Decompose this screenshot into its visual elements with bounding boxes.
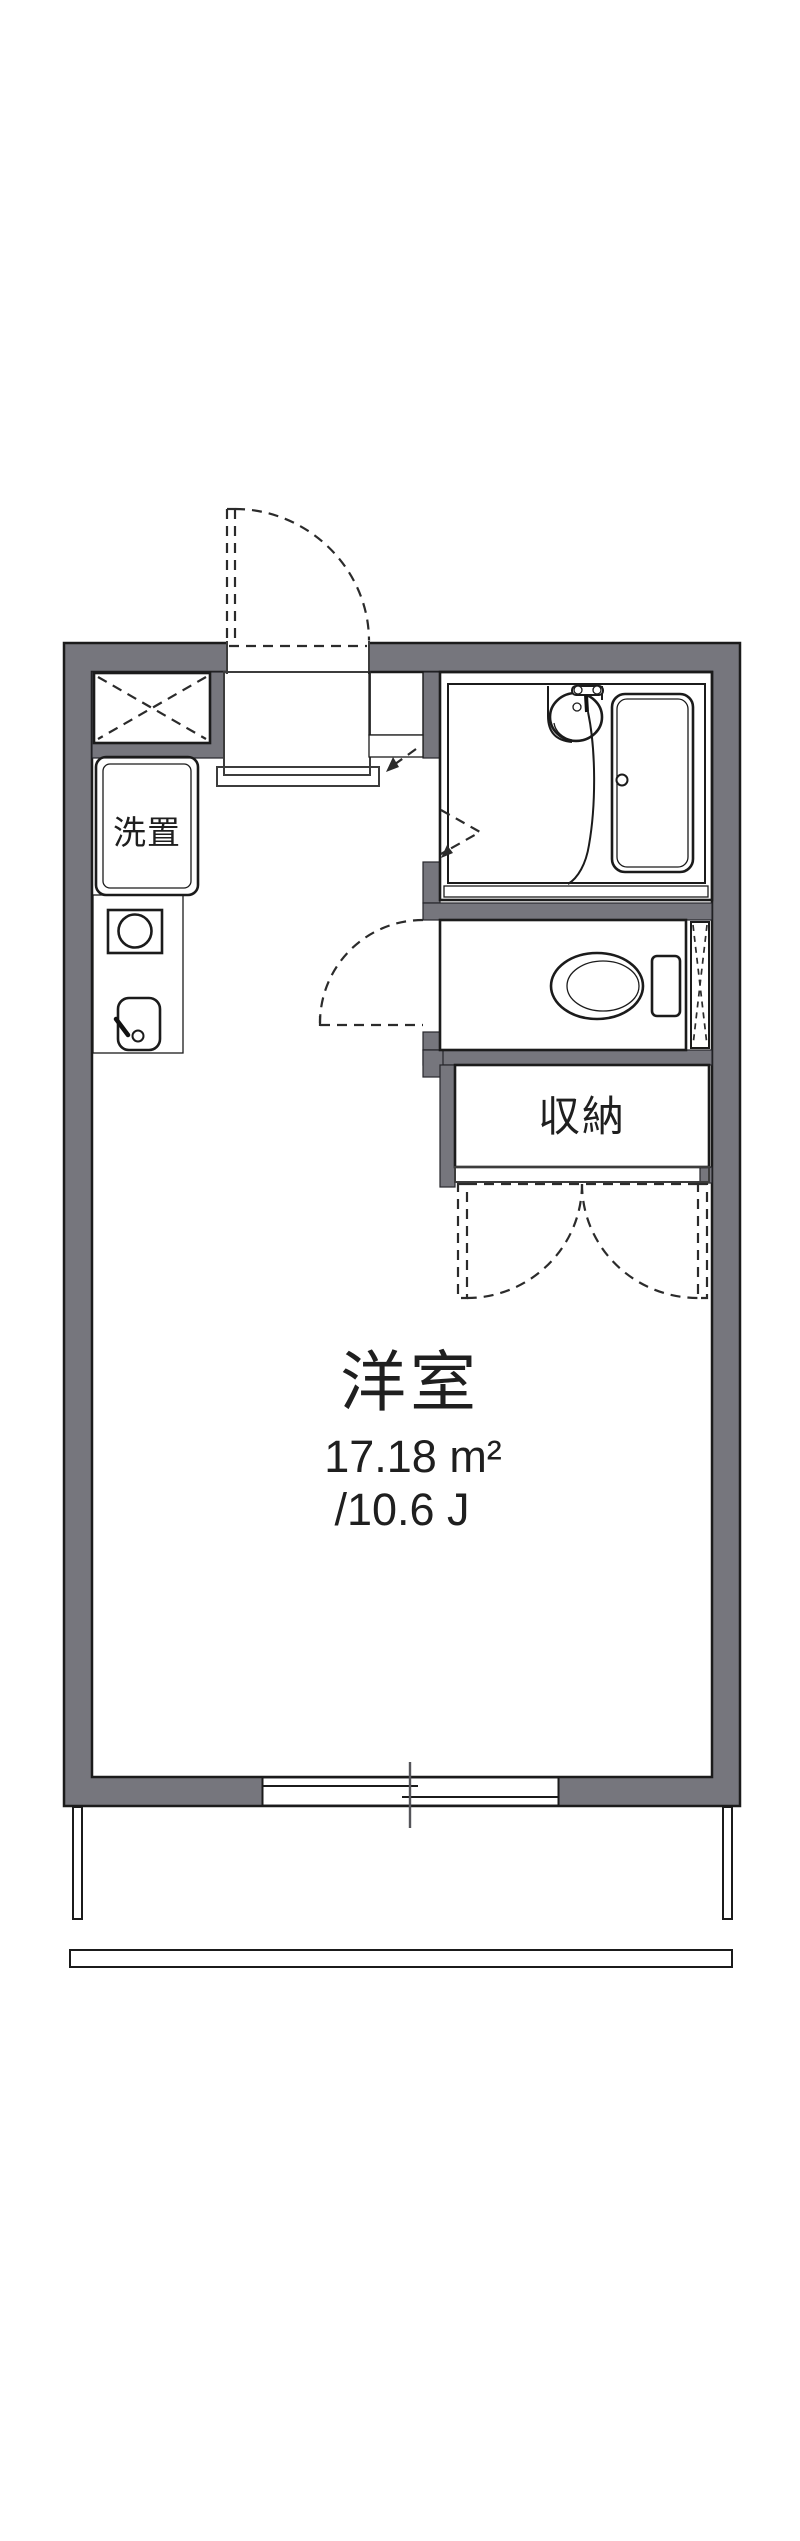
main-room-area-m2: 17.18 m² <box>324 1431 502 1482</box>
hall-step <box>369 735 423 757</box>
balcony-edge <box>70 1950 732 1967</box>
balcony-post-right <box>723 1807 732 1919</box>
main-room-label: 洋室 <box>340 1345 480 1419</box>
washer-label: 洗置 <box>113 814 181 851</box>
bathroom-door-strip <box>444 886 708 897</box>
bathtub-drain <box>617 775 628 786</box>
balcony-railing <box>70 1807 732 1967</box>
faucet-spout <box>586 695 587 712</box>
kitchen-sink <box>116 998 160 1050</box>
entrance-opening <box>226 641 370 675</box>
balcony-post-left <box>73 1807 82 1919</box>
refrigerator-space <box>94 673 210 743</box>
interior-floor <box>92 672 712 1777</box>
storage-label: 収納 <box>538 1093 626 1140</box>
toilet <box>551 953 680 1019</box>
pipe-space <box>691 922 709 1048</box>
toilet-tank <box>652 956 680 1016</box>
gas-stove <box>108 910 162 953</box>
floor-plan-image: 洗置 <box>0 0 800 2541</box>
main-room-area-tatami: /10.6 J <box>334 1484 469 1535</box>
entrance-door-swing <box>227 509 369 641</box>
floor-plan-svg: 洗置 <box>0 0 800 2541</box>
